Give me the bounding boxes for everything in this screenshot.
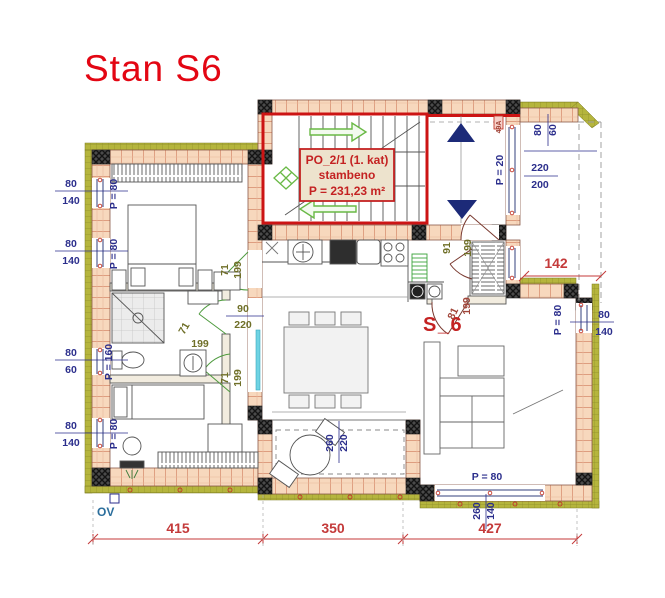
sink xyxy=(188,291,218,304)
dimension-label: 199 xyxy=(191,338,209,350)
dimension-label: P = 80 xyxy=(472,471,503,483)
closet-area xyxy=(472,242,504,294)
desk xyxy=(208,424,242,452)
dimension-label: 140 xyxy=(62,255,80,267)
wardrobe xyxy=(158,452,258,468)
dimension-label: 71 xyxy=(219,264,231,276)
dimension-label: P = 20 xyxy=(494,155,506,186)
stair-label-box: PO_2/1 (1. kat) stambeno P = 231,23 m² xyxy=(300,149,394,201)
stair-label-line2: stambeno xyxy=(319,168,376,182)
pantry-shelf xyxy=(412,254,427,282)
living-room-furniture xyxy=(424,342,563,454)
dimension-label: 140 xyxy=(62,195,80,207)
stairs-up-arrow xyxy=(310,123,366,141)
nightstand xyxy=(198,270,212,290)
dimension-label: 91 xyxy=(441,242,453,254)
dimension-label: 427 xyxy=(478,520,502,536)
drawing-title: Stan S6 xyxy=(84,48,223,90)
dimension-label: 80 xyxy=(65,238,77,250)
dimension-label: P = 80 xyxy=(552,305,564,336)
dimension-label: 260 xyxy=(324,434,336,452)
dimension-label: 199 xyxy=(232,369,244,387)
sliding-door xyxy=(256,330,260,390)
chair xyxy=(289,312,309,325)
stairs-down-arrow xyxy=(300,200,356,218)
tv-line xyxy=(513,390,563,414)
floor-plan-canvas: Stan S6 xyxy=(0,0,665,598)
entrance-hall xyxy=(430,116,503,240)
vent xyxy=(266,242,278,254)
dimension-label: 80 xyxy=(532,124,544,136)
bedroom2-furniture xyxy=(112,385,258,479)
rug xyxy=(120,461,144,468)
dimension-label: 80 xyxy=(65,347,77,359)
dining-table xyxy=(284,327,368,393)
shaft-symbol xyxy=(274,167,298,189)
dimension-label: P = 80 xyxy=(108,239,120,270)
dimension-label: 260 xyxy=(471,502,483,520)
chair xyxy=(341,395,361,408)
dimension-label: 60 xyxy=(547,124,559,136)
dimension-label: P = 160 xyxy=(103,344,115,380)
dimension-label: 199 xyxy=(232,261,244,279)
dimension-label: 415 xyxy=(166,520,190,536)
dimension-label: 220 xyxy=(531,162,549,174)
side-table xyxy=(458,346,504,376)
bathroom-fixtures xyxy=(112,291,218,376)
stair-label-line1: PO_2/1 (1. kat) xyxy=(306,153,389,167)
fridge xyxy=(330,240,356,264)
pillow xyxy=(131,268,145,286)
dimension-label: 80 xyxy=(65,420,77,432)
direction-triangle-down xyxy=(447,200,477,219)
ov-marker: OV xyxy=(97,494,119,519)
dining-furniture xyxy=(284,312,368,408)
dimension-label: 200 xyxy=(531,179,549,191)
chair xyxy=(123,437,141,455)
dimension-label: 140 xyxy=(62,437,80,449)
sofa-cushions xyxy=(440,378,504,396)
dimension-label: 71 xyxy=(176,320,192,336)
dimension-label: 80 xyxy=(598,309,610,321)
direction-triangle-up xyxy=(447,123,475,142)
chair xyxy=(341,312,361,325)
chair xyxy=(289,395,309,408)
wardrobe xyxy=(112,164,242,182)
nightstand xyxy=(112,270,126,290)
stairwell: PO_2/1 (1. kat) stambeno P = 231,23 m² xyxy=(263,114,520,223)
pillow xyxy=(114,387,127,417)
dimension-label: 49A xyxy=(496,121,503,134)
dimension-label: 220 xyxy=(234,319,252,331)
dimension-label: 142 xyxy=(544,255,568,271)
dimension-label: 60 xyxy=(65,364,77,376)
dimension-label: P = 80 xyxy=(108,419,120,450)
chair xyxy=(315,312,335,325)
oven xyxy=(357,240,380,264)
kitchen xyxy=(262,240,444,299)
dimension-label: 220 xyxy=(338,434,350,452)
sofa-back xyxy=(424,342,440,454)
dimension-label: 199 xyxy=(461,297,473,315)
dimension-label: 350 xyxy=(321,520,345,536)
dimension-label: 140 xyxy=(595,326,613,338)
pillow xyxy=(179,268,193,286)
chair xyxy=(315,395,335,408)
dimension-label: 90 xyxy=(237,303,249,315)
stair-label-line3: P = 231,23 m² xyxy=(309,184,385,198)
ov-label: OV xyxy=(97,505,114,519)
dimension-label: 80 xyxy=(65,178,77,190)
dimension-label: 199 xyxy=(462,239,474,257)
dimension-label: 71 xyxy=(219,372,231,384)
dimension-label: 140 xyxy=(485,502,497,520)
dimension-label: P = 80 xyxy=(108,179,120,210)
